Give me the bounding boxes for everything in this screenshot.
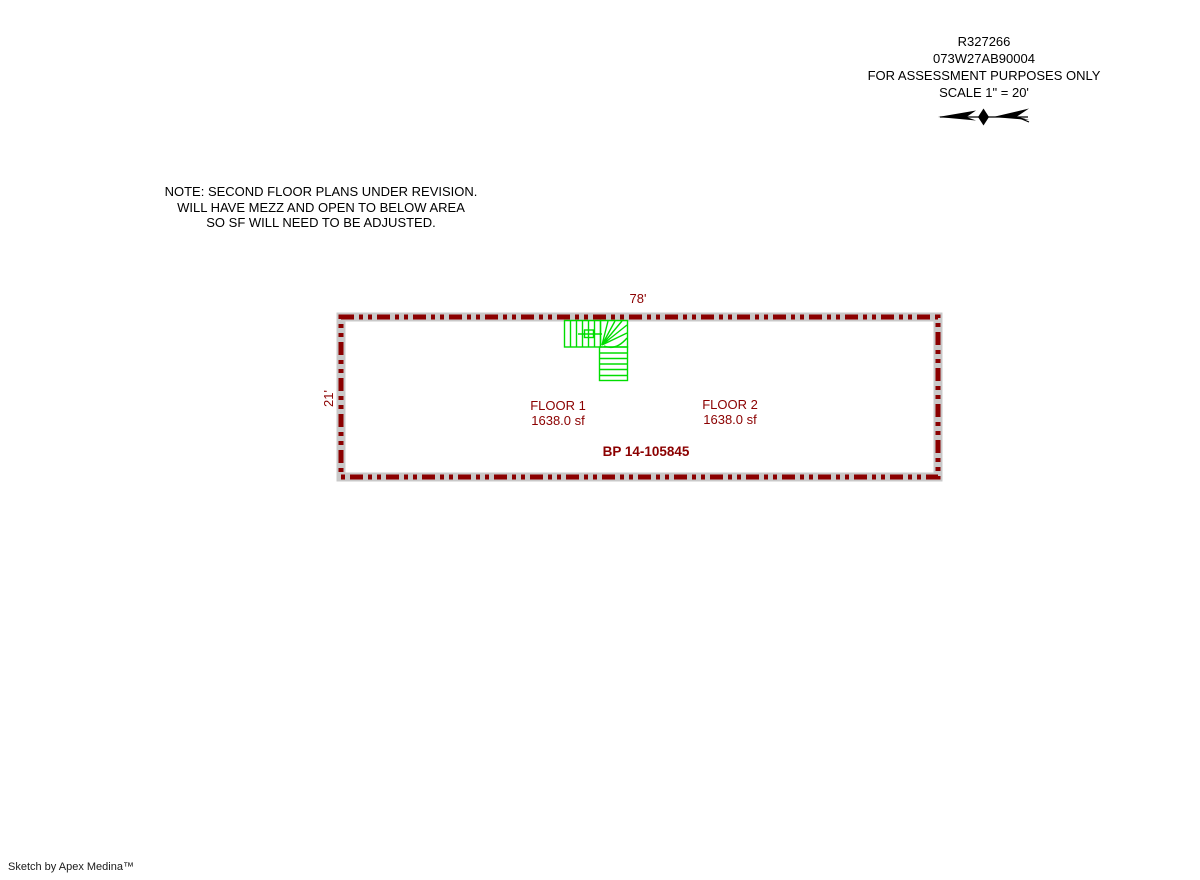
- building-permit-label: BP 14-105845: [570, 444, 722, 459]
- staircase-icon: [565, 321, 628, 381]
- floor-2-label: FLOOR 2 1638.0 sf: [670, 398, 790, 427]
- left-dimension-label: 21': [321, 376, 336, 421]
- floor-2-name: FLOOR 2: [670, 398, 790, 413]
- top-dimension-label: 78': [608, 291, 668, 306]
- stair-lower-treads: [600, 353, 628, 376]
- floor-2-area: 1638.0 sf: [670, 413, 790, 428]
- floor-1-label: FLOOR 1 1638.0 sf: [498, 399, 618, 428]
- sketch-credit: Sketch by Apex Medina™: [8, 861, 134, 873]
- floor-1-name: FLOOR 1: [498, 399, 618, 414]
- assessment-sketch-page: R327266 073W27AB90004 FOR ASSESSMENT PUR…: [0, 0, 1200, 880]
- floor-1-area: 1638.0 sf: [498, 414, 618, 429]
- building-sketch: [0, 0, 1200, 880]
